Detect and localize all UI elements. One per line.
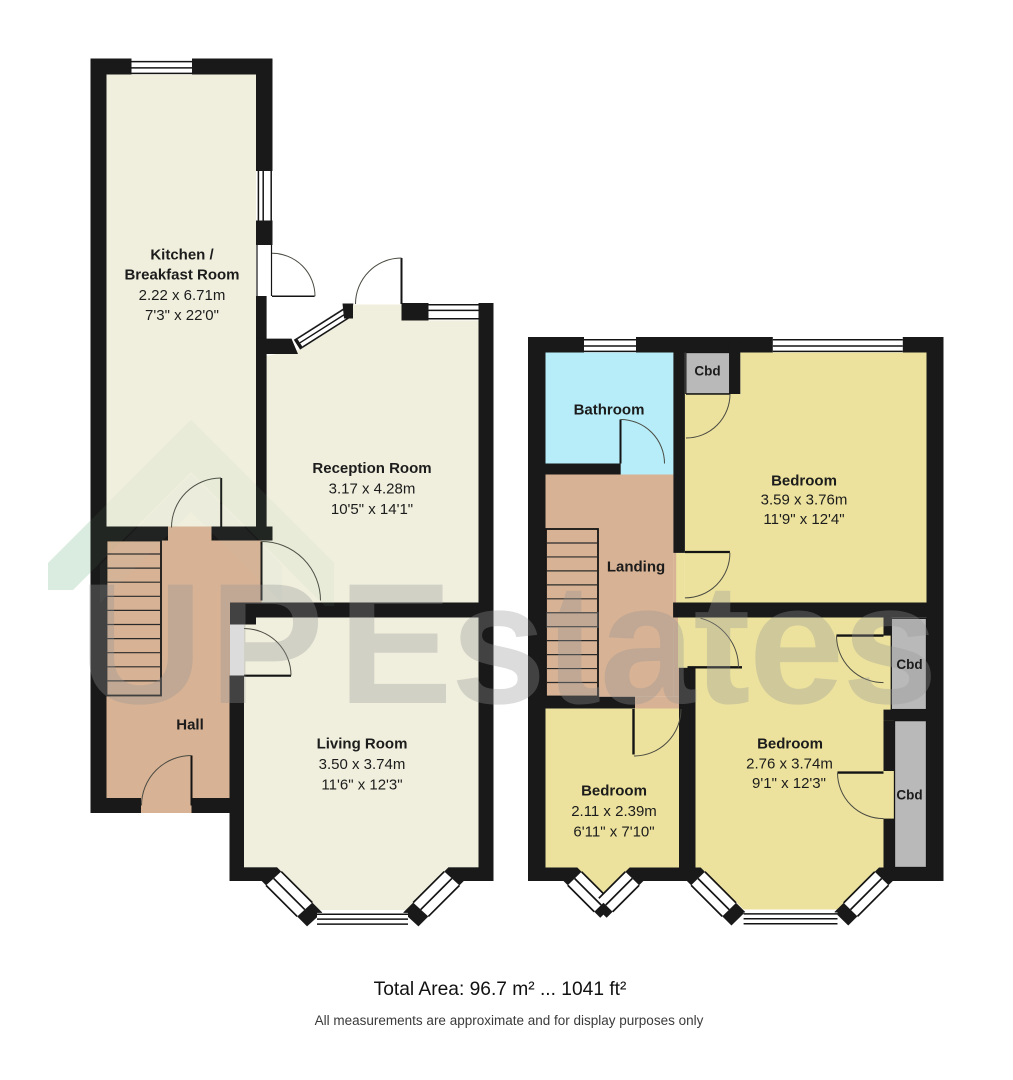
svg-text:Breakfast Room: Breakfast Room	[124, 267, 239, 284]
svg-text:2.22 x 6.71m: 2.22 x 6.71m	[139, 287, 226, 304]
svg-text:2.11 x 2.39m: 2.11 x 2.39m	[571, 803, 657, 820]
svg-text:Kitchen /: Kitchen /	[150, 247, 214, 264]
svg-text:3.50 x 3.74m: 3.50 x 3.74m	[319, 756, 406, 773]
svg-text:UP: UP	[79, 548, 330, 740]
svg-text:9'1" x 12'3": 9'1" x 12'3"	[752, 775, 826, 792]
svg-text:Reception Room: Reception Room	[312, 460, 431, 477]
svg-text:11'9" x 12'4": 11'9" x 12'4"	[763, 511, 844, 528]
svg-text:2.76 x 3.74m: 2.76 x 3.74m	[746, 756, 833, 773]
svg-text:Bedroom: Bedroom	[771, 473, 837, 490]
svg-text:Bedroom: Bedroom	[581, 783, 647, 800]
svg-text:All measurements are approxima: All measurements are approximate and for…	[315, 1013, 704, 1028]
svg-text:Hall: Hall	[176, 717, 204, 734]
svg-text:Cbd: Cbd	[896, 657, 922, 672]
svg-text:7'3" x 22'0": 7'3" x 22'0"	[145, 307, 219, 324]
svg-text:11'6" x 12'3": 11'6" x 12'3"	[321, 777, 402, 794]
svg-text:Bedroom: Bedroom	[757, 736, 823, 753]
svg-text:6'11" x 7'10": 6'11" x 7'10"	[573, 824, 654, 841]
svg-text:Landing: Landing	[607, 559, 665, 576]
svg-text:Living Room: Living Room	[317, 736, 408, 753]
svg-text:Estates: Estates	[338, 548, 936, 740]
svg-text:10'5" x 14'1": 10'5" x 14'1"	[331, 501, 413, 518]
svg-text:Bathroom: Bathroom	[574, 402, 645, 419]
svg-text:Total Area: 96.7 m² ... 1041 f: Total Area: 96.7 m² ... 1041 ft²	[374, 979, 627, 1000]
svg-text:Cbd: Cbd	[694, 364, 720, 379]
svg-text:3.59 x 3.76m: 3.59 x 3.76m	[761, 492, 848, 509]
svg-text:3.17 x 4.28m: 3.17 x 4.28m	[329, 481, 416, 498]
svg-text:Cbd: Cbd	[896, 788, 922, 803]
